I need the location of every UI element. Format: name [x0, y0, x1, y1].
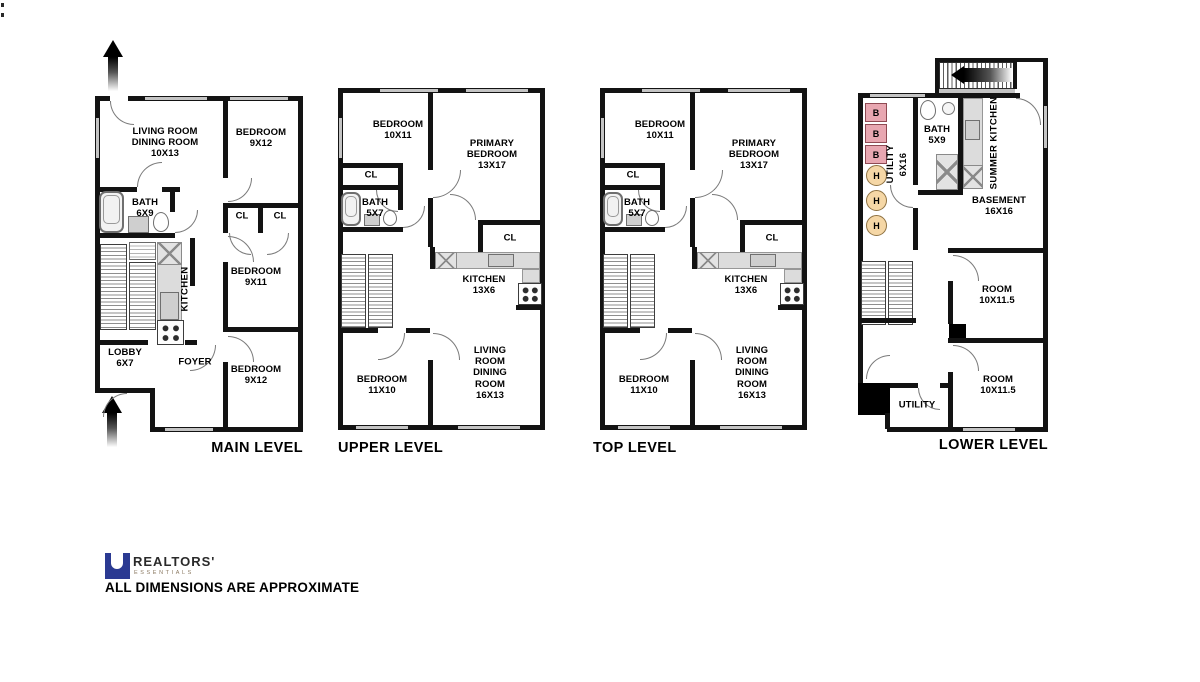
- wall: [95, 340, 148, 345]
- wall: [223, 362, 228, 427]
- cabinet-icon: [963, 165, 983, 189]
- window: [339, 118, 342, 158]
- entrance-arrow-stem: [108, 57, 118, 91]
- wall: [913, 208, 918, 250]
- wall: [948, 248, 1048, 253]
- wall: [540, 88, 545, 430]
- entry-arrow-left-icon: [951, 66, 964, 84]
- wall: [223, 203, 228, 233]
- wall: [223, 262, 228, 327]
- bathtub-icon: [603, 192, 623, 226]
- cabinet-icon: [157, 242, 182, 265]
- stairs: [129, 242, 156, 260]
- room-label-living: LIVING ROOM DINING ROOM 16X13: [725, 345, 780, 401]
- wall: [478, 225, 483, 252]
- logo-sub-text: ESSENTIALS: [134, 570, 194, 576]
- bathtub-icon: [99, 191, 124, 233]
- room-label-bedroom-mid: BEDROOM 9X11: [231, 266, 281, 288]
- room-label-living: LIVING ROOM DINING ROOM 16X13: [463, 345, 518, 401]
- room-label-room-rear: ROOM 10X11.5: [980, 374, 1016, 396]
- room-label-kitchen: KITCHEN 13X6: [463, 274, 506, 296]
- wall: [940, 383, 948, 388]
- door-arc: [890, 185, 913, 208]
- wall: [858, 318, 916, 323]
- window: [230, 97, 288, 100]
- plan-caption-top-level: TOP LEVEL: [593, 440, 677, 456]
- kitchen-counter: [784, 269, 802, 283]
- floor-plan-main-level: LIVING ROOM DINING ROOM 10X13 BEDROOM 9X…: [95, 96, 303, 432]
- stairs: [368, 254, 393, 328]
- boiler-marker: B: [865, 145, 887, 164]
- room-label-closet-primary: CL: [504, 232, 517, 243]
- door-arc: [175, 210, 198, 233]
- water-heater-marker: H: [866, 215, 887, 236]
- wall: [948, 281, 953, 324]
- wall: [338, 328, 378, 333]
- window: [458, 426, 520, 429]
- room-label-kitchen: KITCHEN 13X6: [725, 274, 768, 296]
- wall: [1013, 62, 1017, 89]
- floor-plan-sheet: LIVING ROOM DINING ROOM 10X13 BEDROOM 9X…: [0, 0, 1200, 682]
- stairs: [341, 254, 366, 328]
- room-label-bath: BATH 5X7: [362, 197, 388, 219]
- room-label-bedroom-front: BEDROOM 10X11: [635, 119, 685, 141]
- window: [380, 89, 438, 92]
- window: [963, 428, 1015, 431]
- sink-icon: [942, 102, 955, 115]
- wall: [690, 198, 695, 247]
- stove-icon: [157, 320, 184, 345]
- chimney-block: [858, 383, 890, 415]
- stairs: [630, 254, 655, 328]
- wall: [223, 327, 298, 332]
- wall: [95, 233, 175, 238]
- room-label-bedroom-rear: BEDROOM 11X10: [619, 374, 669, 396]
- door-arc: [403, 206, 425, 228]
- wall: [428, 93, 433, 170]
- stairs: [888, 261, 913, 325]
- room-label-closet-front: CL: [365, 169, 378, 180]
- wall: [600, 163, 665, 168]
- door-arc: [640, 333, 667, 360]
- door-arc: [110, 101, 134, 125]
- dimensions-disclaimer: ALL DIMENSIONS ARE APPROXIMATE: [105, 580, 359, 595]
- scan-artifact: [1, 3, 4, 7]
- wall: [948, 372, 953, 427]
- logo-brand-text: REALTORS': [133, 554, 215, 569]
- plan-caption-upper-level: UPPER LEVEL: [338, 440, 443, 456]
- wall: [516, 305, 545, 310]
- wall: [948, 338, 1048, 343]
- boiler-marker: B: [865, 103, 887, 122]
- door-arc: [228, 178, 252, 202]
- wall: [338, 227, 403, 232]
- wall: [778, 305, 807, 310]
- wall: [428, 198, 433, 247]
- stove-icon: [518, 283, 542, 305]
- stairs: [603, 254, 628, 328]
- door-arc: [695, 170, 723, 198]
- toilet-icon: [920, 100, 936, 120]
- room-label-foyer: FOYER: [178, 356, 211, 367]
- wall: [298, 96, 303, 432]
- room-label-lobby: LOBBY 6X7: [108, 347, 142, 369]
- wall: [170, 192, 175, 212]
- window: [96, 118, 99, 158]
- wall: [406, 328, 430, 333]
- room-label-summer-kitchen: SUMMER KITCHEN: [989, 97, 1002, 190]
- door-arc: [450, 194, 476, 220]
- wall: [668, 328, 692, 333]
- kitchen-counter: [522, 269, 540, 283]
- door-arc: [433, 170, 461, 198]
- kitchen-sink-icon: [750, 254, 776, 267]
- boiler-marker: B: [865, 124, 887, 143]
- room-label-bedroom-rear: BEDROOM 11X10: [357, 374, 407, 396]
- wall: [690, 360, 695, 425]
- room-label-primary: PRIMARY BEDROOM 13X17: [729, 138, 779, 172]
- plan-caption-main-level: MAIN LEVEL: [157, 440, 303, 456]
- water-heater-marker: H: [866, 165, 887, 186]
- window: [145, 97, 207, 100]
- room-label-closet-right: CL: [274, 210, 287, 221]
- wall: [428, 360, 433, 425]
- room-label-bath: BATH 5X9: [924, 124, 950, 146]
- door-arc: [953, 345, 979, 371]
- window: [870, 94, 925, 97]
- entry-arrow-stem: [964, 68, 1012, 82]
- room-label-utility-front: UTILITY 6X16: [885, 145, 911, 184]
- window: [356, 426, 408, 429]
- wall: [338, 163, 403, 168]
- shower-icon: [936, 154, 958, 190]
- stove-icon: [780, 283, 804, 305]
- floor-plan-lower-level: B B B H H H UTILITY 6X16 BATH 5X: [858, 58, 1048, 432]
- stairs: [861, 261, 886, 325]
- door-arc: [433, 333, 460, 360]
- window: [720, 426, 782, 429]
- stairs: [129, 262, 156, 330]
- room-label-utility-rear: UTILITY: [899, 399, 936, 410]
- room-label-closet-front: CL: [627, 169, 640, 180]
- wall: [740, 225, 745, 252]
- door-arc: [866, 355, 890, 379]
- window: [728, 89, 790, 92]
- wall: [600, 227, 665, 232]
- door-arc: [1016, 98, 1041, 125]
- kitchen-sink-icon: [965, 120, 980, 140]
- room-label-closet-left: CL: [236, 210, 249, 221]
- floor-plan-upper-level: BEDROOM 10X11 PRIMARY BEDROOM 13X17 CL B…: [338, 88, 545, 430]
- room-label-bedroom-front: BEDROOM 10X11: [373, 119, 423, 141]
- kitchen-sink-icon: [160, 292, 179, 320]
- kitchen-sink-icon: [488, 254, 514, 267]
- door-arc: [378, 333, 405, 360]
- room-label-bedroom-rear: BEDROOM 9X12: [231, 364, 281, 386]
- room-label-basement: BASEMENT 16X16: [972, 195, 1026, 217]
- door-arc: [712, 194, 738, 220]
- wall: [918, 190, 960, 195]
- wall: [913, 98, 918, 185]
- floor-plan-top-level: BEDROOM 10X11 PRIMARY BEDROOM 13X17 CL B…: [600, 88, 807, 430]
- wall: [802, 88, 807, 430]
- water-heater-marker: H: [866, 190, 887, 211]
- wall: [600, 328, 640, 333]
- room-label-living: LIVING ROOM DINING ROOM 10X13: [132, 126, 199, 160]
- door-arc: [953, 255, 979, 281]
- wall: [150, 388, 155, 432]
- room-label-bath: BATH 5X7: [624, 197, 650, 219]
- cabinet-icon: [697, 252, 719, 269]
- wall: [478, 220, 540, 225]
- wall: [890, 383, 918, 388]
- wall: [740, 220, 802, 225]
- window: [1044, 106, 1047, 148]
- door-arc: [665, 206, 687, 228]
- wall: [258, 203, 263, 233]
- window: [642, 89, 700, 92]
- window: [165, 428, 213, 431]
- wall: [690, 93, 695, 170]
- plan-caption-lower-level: LOWER LEVEL: [898, 437, 1048, 453]
- stairs: [100, 244, 127, 330]
- wall: [858, 93, 863, 385]
- lobby-arrow-stem: [107, 413, 117, 447]
- door-arc: [137, 162, 162, 187]
- cabinet-icon: [435, 252, 457, 269]
- door-arc: [695, 333, 722, 360]
- realtors-logo-notch: [111, 553, 123, 569]
- room-label-primary: PRIMARY BEDROOM 13X17: [467, 138, 517, 172]
- room-label-room-mid: ROOM 10X11.5: [979, 284, 1015, 306]
- window: [466, 89, 528, 92]
- entrance-arrow-up-icon: [103, 40, 123, 57]
- room-label-bath: BATH 6X9: [132, 197, 158, 219]
- room-label-bedroom-front: BEDROOM 9X12: [236, 127, 286, 149]
- realtors-logo-icon: [105, 553, 130, 579]
- wall: [223, 101, 228, 178]
- room-label-closet-primary: CL: [766, 232, 779, 243]
- window: [601, 118, 604, 158]
- door-arc: [228, 336, 254, 362]
- room-label-kitchen: KITCHEN: [180, 266, 193, 311]
- window: [618, 426, 670, 429]
- door-arc: [267, 233, 289, 255]
- bathtub-icon: [341, 192, 361, 226]
